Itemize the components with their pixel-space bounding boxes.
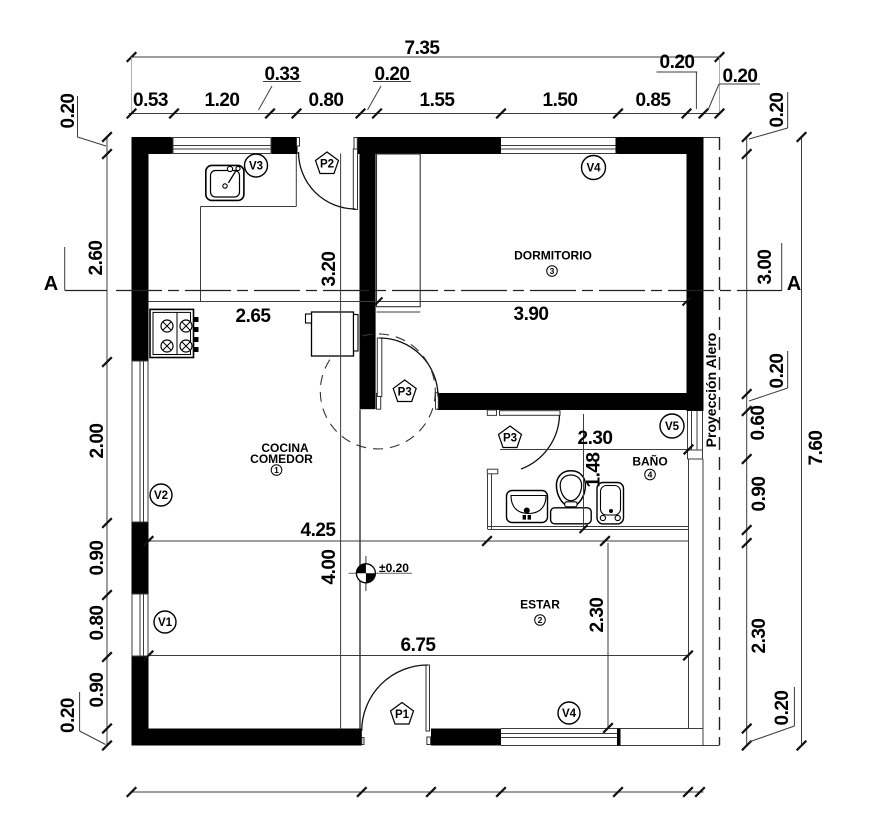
svg-text:3.00: 3.00 xyxy=(755,250,776,285)
svg-text:P3: P3 xyxy=(503,433,517,445)
svg-text:P2: P2 xyxy=(320,159,334,171)
svg-text:2: 2 xyxy=(538,615,543,625)
svg-text:7.35: 7.35 xyxy=(405,38,441,59)
svg-text:1.55: 1.55 xyxy=(420,90,456,111)
svg-text:ESTAR: ESTAR xyxy=(520,598,560,612)
svg-text:0.20: 0.20 xyxy=(772,691,793,726)
svg-text:0.60: 0.60 xyxy=(748,406,769,441)
svg-text:4: 4 xyxy=(648,470,653,480)
svg-text:P1: P1 xyxy=(395,709,410,721)
svg-text:V4: V4 xyxy=(562,708,577,720)
svg-text:2.00: 2.00 xyxy=(87,424,108,459)
svg-text:0.20: 0.20 xyxy=(58,94,79,129)
svg-text:2.30: 2.30 xyxy=(578,428,613,449)
svg-text:2.30: 2.30 xyxy=(587,598,608,633)
svg-text:4.25: 4.25 xyxy=(301,520,337,541)
svg-text:3.90: 3.90 xyxy=(514,304,549,325)
svg-text:V5: V5 xyxy=(665,421,680,433)
svg-text:0.20: 0.20 xyxy=(58,698,79,733)
svg-text:7.60: 7.60 xyxy=(806,431,827,466)
svg-text:0.85: 0.85 xyxy=(636,90,672,111)
svg-text:2.65: 2.65 xyxy=(236,306,272,327)
svg-text:0.53: 0.53 xyxy=(133,90,168,111)
svg-text:3.20: 3.20 xyxy=(319,252,340,287)
svg-text:P3: P3 xyxy=(398,387,412,399)
svg-text:Proyección Alero: Proyección Alero xyxy=(703,333,719,448)
svg-text:V1: V1 xyxy=(158,617,173,629)
svg-text:0.80: 0.80 xyxy=(87,606,108,641)
svg-text:0.90: 0.90 xyxy=(87,541,108,576)
svg-text:V3: V3 xyxy=(249,161,263,173)
svg-text:0.80: 0.80 xyxy=(309,90,344,111)
svg-text:±0.20: ±0.20 xyxy=(379,561,409,575)
svg-text:1.50: 1.50 xyxy=(543,90,578,111)
svg-text:A: A xyxy=(44,273,58,295)
svg-text:6.75: 6.75 xyxy=(401,635,437,656)
svg-text:DORMITORIO: DORMITORIO xyxy=(514,249,592,263)
svg-text:0.20: 0.20 xyxy=(723,66,758,87)
svg-text:2.60: 2.60 xyxy=(86,241,107,276)
svg-text:V4: V4 xyxy=(586,163,601,175)
svg-text:1.48: 1.48 xyxy=(584,453,605,488)
svg-text:A: A xyxy=(787,273,801,295)
svg-text:1.20: 1.20 xyxy=(205,90,240,111)
svg-text:0.33: 0.33 xyxy=(265,64,300,85)
svg-text:0.90: 0.90 xyxy=(749,477,770,512)
svg-text:V2: V2 xyxy=(154,490,168,502)
svg-text:0.20: 0.20 xyxy=(767,93,788,128)
svg-text:1: 1 xyxy=(274,465,279,475)
svg-text:0.90: 0.90 xyxy=(87,673,108,708)
svg-text:COMEDOR: COMEDOR xyxy=(250,452,313,466)
svg-text:0.20: 0.20 xyxy=(767,354,788,389)
svg-text:0.20: 0.20 xyxy=(660,52,695,73)
svg-text:0.20: 0.20 xyxy=(375,64,410,85)
svg-text:2.30: 2.30 xyxy=(749,619,770,654)
svg-text:3: 3 xyxy=(550,266,555,276)
svg-text:4.00: 4.00 xyxy=(319,550,340,585)
svg-text:BAÑO: BAÑO xyxy=(632,454,667,469)
